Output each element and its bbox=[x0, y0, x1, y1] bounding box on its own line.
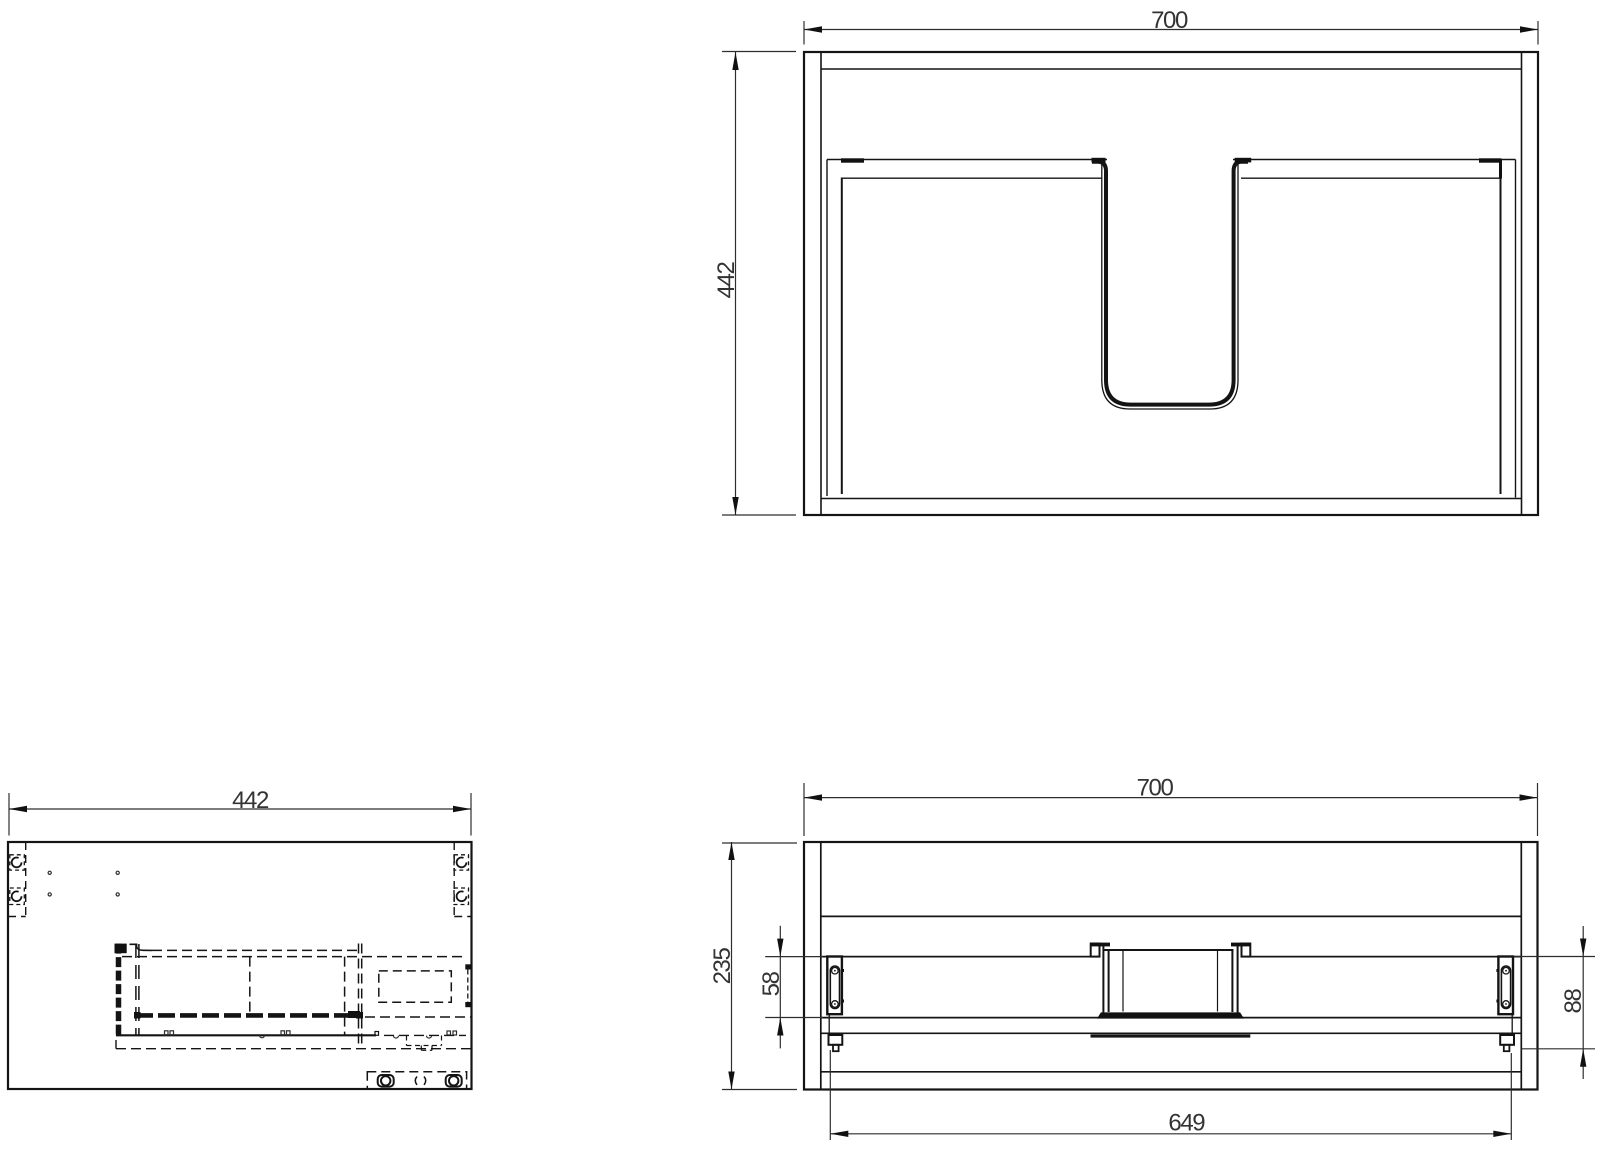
svg-text:442: 442 bbox=[232, 787, 269, 814]
svg-text:700: 700 bbox=[1151, 7, 1188, 34]
svg-text:235: 235 bbox=[709, 948, 736, 985]
svg-text:649: 649 bbox=[1168, 1110, 1205, 1137]
svg-text:58: 58 bbox=[758, 971, 785, 996]
svg-text:442: 442 bbox=[713, 262, 740, 299]
svg-text:700: 700 bbox=[1137, 775, 1174, 802]
svg-text:88: 88 bbox=[1560, 989, 1587, 1014]
